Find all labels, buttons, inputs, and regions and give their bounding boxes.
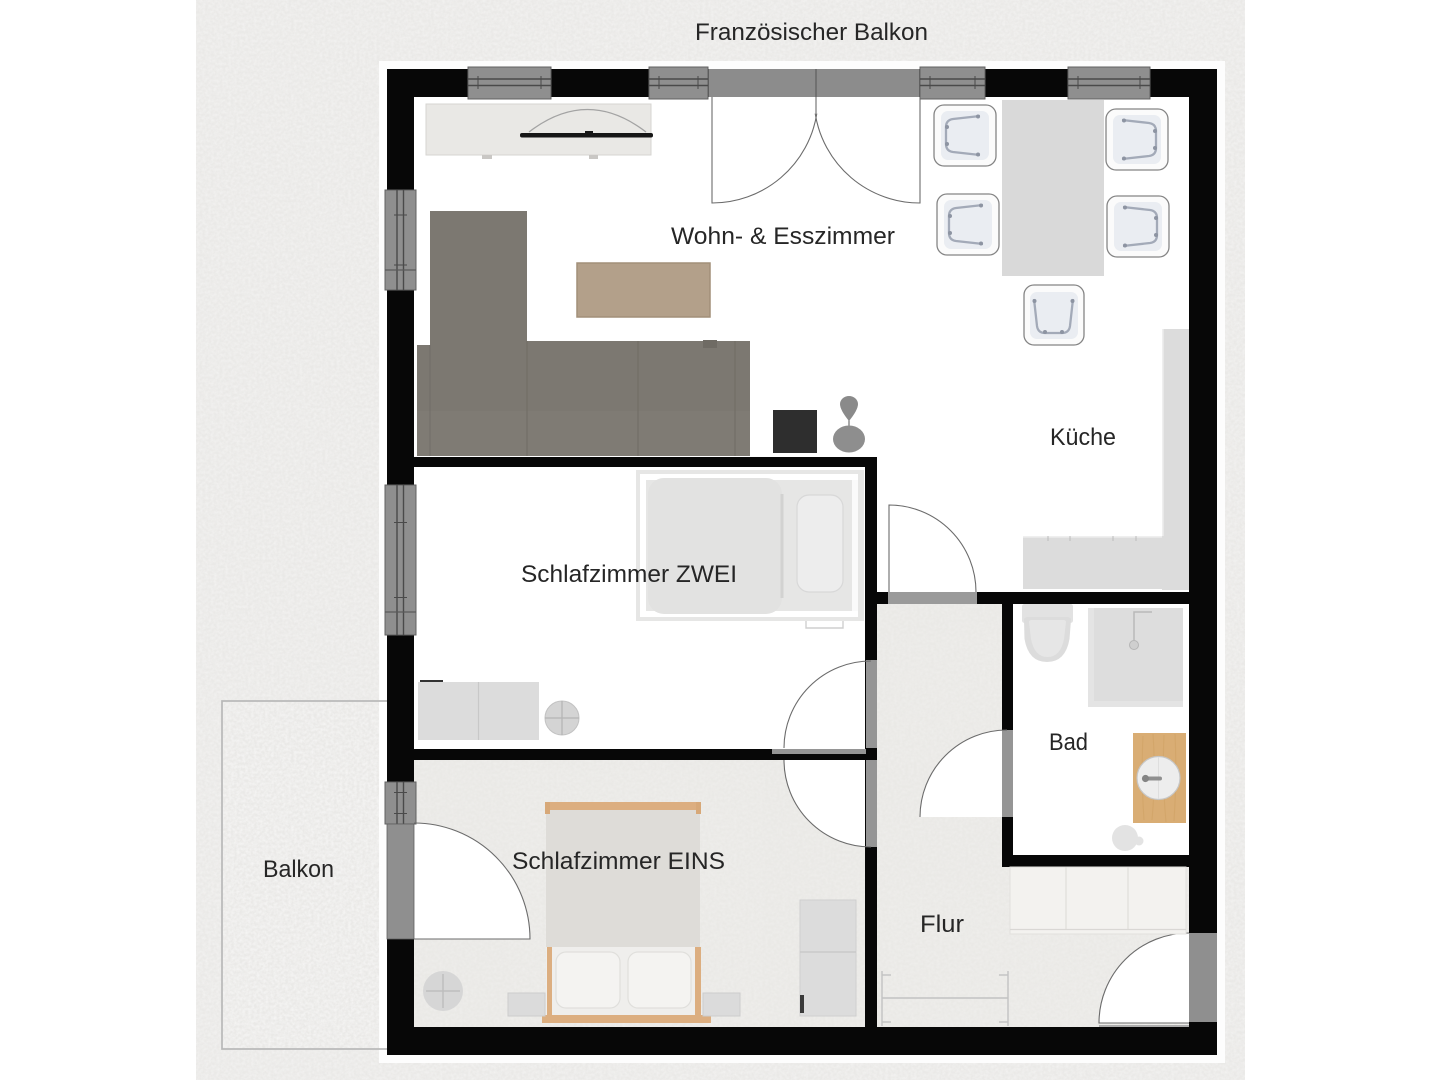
svg-text:Schlafzimmer ZWEI: Schlafzimmer ZWEI [521, 561, 737, 588]
svg-text:Wohn- & Esszimmer: Wohn- & Esszimmer [671, 223, 895, 250]
svg-text:Schlafzimmer EINS: Schlafzimmer EINS [512, 848, 725, 875]
svg-text:Französischer Balkon: Französischer Balkon [695, 19, 928, 46]
svg-text:Balkon: Balkon [263, 856, 334, 883]
svg-text:Flur: Flur [920, 911, 964, 938]
svg-text:Bad: Bad [1049, 729, 1088, 756]
svg-text:Küche: Küche [1050, 424, 1116, 451]
